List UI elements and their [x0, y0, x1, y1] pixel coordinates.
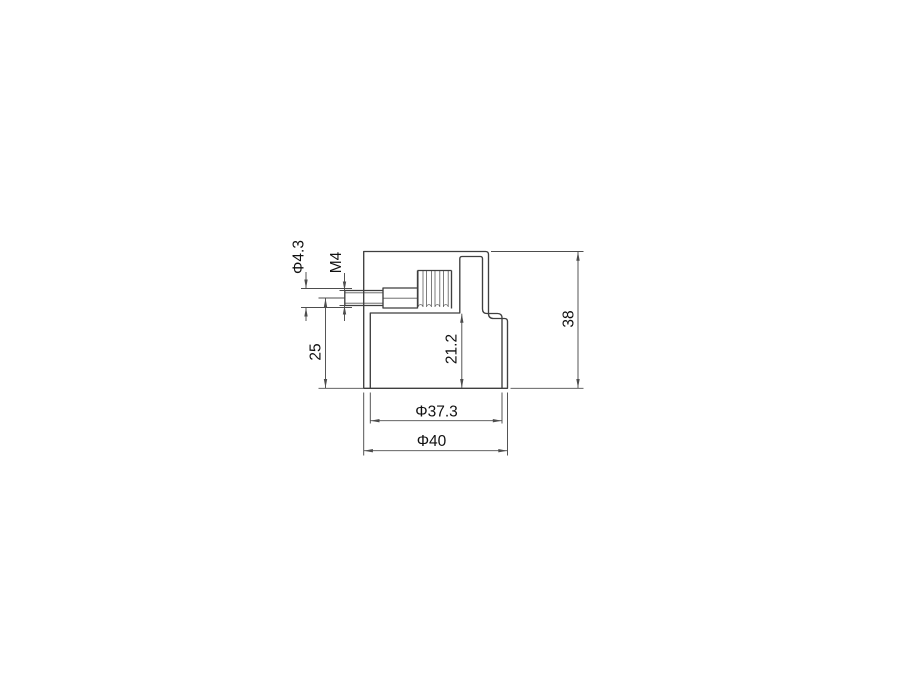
thread-groove-3 [435, 271, 440, 308]
arrow-down [576, 379, 579, 388]
thread-groove-4 [443, 271, 448, 308]
dim-thread: M4 [328, 251, 346, 321]
arrow-up [343, 306, 346, 315]
dim-outer-diameter: Φ40 [364, 393, 508, 456]
arrow-right [498, 449, 507, 452]
arrow-left [371, 419, 380, 422]
part-inner-profile [370, 257, 502, 389]
thread-section [418, 271, 452, 309]
arrow-up [324, 298, 327, 307]
dim-text-overall-height: 38 [561, 310, 578, 327]
arrow-down [304, 280, 307, 289]
arrow-down [460, 379, 463, 388]
dim-axis-to-base: 25 [308, 298, 364, 388]
dim-text-hole-diameter: Φ4.3 [291, 240, 308, 274]
stud-boss [383, 288, 418, 308]
arrow-up [460, 314, 463, 323]
dim-text-axis-to-base: 25 [308, 343, 325, 360]
arrow-up [576, 252, 579, 261]
dim-inner-depth: 21.2 [444, 314, 464, 388]
arrow-down [324, 379, 327, 388]
dim-text-inner-diameter: Φ37.3 [415, 404, 458, 421]
dim-text-thread: M4 [328, 251, 345, 273]
dim-text-inner-depth: 21.2 [444, 334, 461, 364]
arrow-up [304, 308, 307, 317]
dim-overall-height: 38 [491, 252, 584, 389]
thread-groove-2 [427, 271, 432, 308]
arrow-right [493, 419, 502, 422]
arrow-down [343, 282, 346, 291]
arrow-left [364, 449, 373, 452]
dim-inner-diameter: Φ37.3 [370, 393, 502, 424]
part-view [345, 252, 508, 389]
part-outer-profile [364, 252, 508, 389]
thread-groove-1 [418, 271, 423, 308]
dim-text-outer-diameter: Φ40 [417, 433, 447, 450]
engineering-drawing: Φ4.3 M4 25 21.2 38 Φ37.3 [0, 0, 900, 700]
drawing-canvas: Φ4.3 M4 25 21.2 38 Φ37.3 [0, 0, 900, 700]
